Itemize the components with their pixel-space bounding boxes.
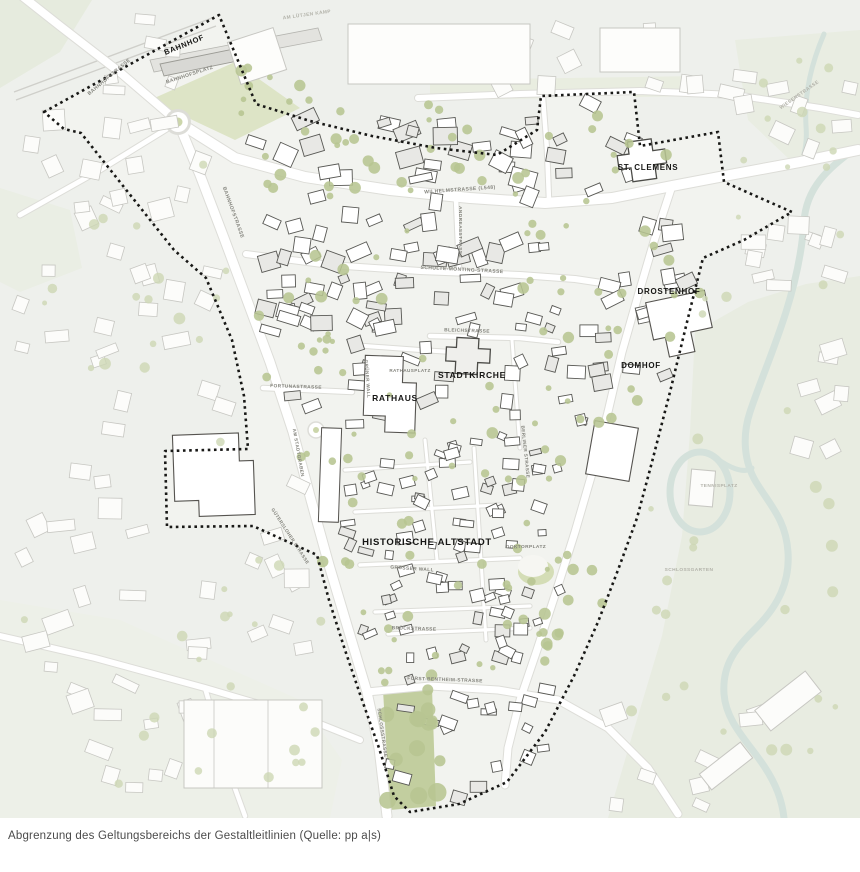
building <box>525 116 538 125</box>
tree <box>662 693 670 701</box>
tree <box>518 615 528 625</box>
tree <box>740 157 747 164</box>
tree <box>450 162 460 172</box>
building <box>537 76 556 96</box>
tree <box>262 153 269 160</box>
tree <box>539 327 547 335</box>
building <box>510 410 521 420</box>
building <box>120 590 146 601</box>
tree <box>826 540 838 552</box>
tree <box>759 78 768 87</box>
building <box>489 578 505 590</box>
building <box>45 330 69 343</box>
tree <box>196 657 202 663</box>
tree <box>824 63 833 72</box>
tree <box>353 297 360 304</box>
label-doktorplatz: DOKTORPLATZ <box>506 544 546 550</box>
tree <box>613 326 622 335</box>
tree <box>816 123 826 133</box>
tree <box>336 107 344 115</box>
tree <box>555 557 562 564</box>
tree <box>780 605 789 614</box>
tree <box>275 169 287 181</box>
tree <box>592 110 603 121</box>
long-building <box>318 428 341 523</box>
tree <box>555 628 564 637</box>
tree <box>827 586 838 597</box>
tree <box>661 609 671 619</box>
tree <box>652 606 661 615</box>
tree <box>348 498 358 508</box>
tree <box>796 58 802 64</box>
building <box>508 702 522 712</box>
tree <box>449 463 456 470</box>
tree <box>337 264 349 276</box>
tree <box>680 681 689 690</box>
tree <box>539 608 551 620</box>
label-st-clemens: ST. CLEMENS <box>618 163 679 172</box>
building <box>344 484 357 496</box>
label-rathausplatz: RATHAUSPLATZ <box>389 368 430 373</box>
label-domhof: DOMHOF <box>621 361 661 370</box>
tree <box>541 445 549 453</box>
tree <box>264 772 274 782</box>
building <box>567 365 586 379</box>
tree <box>536 631 542 637</box>
tree <box>254 311 264 321</box>
building <box>493 291 513 307</box>
tree <box>88 365 94 371</box>
building <box>788 216 810 235</box>
tree <box>541 638 553 650</box>
label-schlossgarten: SCHLOSSGARTEN <box>665 567 714 573</box>
tree <box>274 560 285 571</box>
tree <box>594 288 602 296</box>
tree <box>334 142 340 148</box>
tree <box>310 727 319 736</box>
tree <box>339 369 346 376</box>
building <box>80 159 103 180</box>
tree <box>545 132 553 140</box>
tree <box>241 97 247 103</box>
tree <box>736 215 741 220</box>
tree <box>588 125 596 133</box>
tree <box>428 783 447 802</box>
building <box>686 75 704 94</box>
building <box>546 147 566 164</box>
tree <box>408 187 414 193</box>
tree <box>196 336 203 343</box>
tree <box>720 728 726 734</box>
building <box>101 421 125 437</box>
tree <box>557 288 564 295</box>
tree <box>546 385 552 391</box>
tree <box>292 759 299 766</box>
building <box>74 201 90 213</box>
tree <box>650 242 659 251</box>
building <box>47 519 76 533</box>
building <box>342 206 359 223</box>
building <box>538 243 549 251</box>
tree <box>207 728 217 738</box>
hall-building <box>600 28 680 72</box>
tree <box>149 712 159 722</box>
tree <box>517 282 529 294</box>
building <box>504 437 520 446</box>
tree <box>177 631 188 642</box>
building <box>745 250 762 268</box>
tree <box>422 684 433 695</box>
building <box>661 224 683 242</box>
tree <box>576 415 584 423</box>
tree <box>565 398 571 404</box>
building <box>460 274 481 282</box>
building <box>380 458 395 468</box>
label-tennisplatz: TENNISPLATZ <box>700 483 737 489</box>
building <box>832 119 852 133</box>
tree <box>823 163 830 170</box>
tree <box>639 225 650 236</box>
tree <box>665 332 675 342</box>
tree <box>223 268 230 275</box>
tree <box>797 107 808 118</box>
tree <box>563 332 574 343</box>
tree <box>823 498 834 509</box>
tree <box>99 358 111 370</box>
tree <box>238 110 244 116</box>
building <box>69 463 91 480</box>
tree <box>389 753 403 767</box>
tree <box>349 134 359 144</box>
building <box>538 529 546 536</box>
building <box>741 235 766 250</box>
tree <box>133 222 140 229</box>
building <box>503 458 520 469</box>
retail-building <box>184 700 322 788</box>
tree <box>563 595 574 606</box>
tree <box>648 506 654 512</box>
tree <box>487 427 499 439</box>
tree <box>316 617 325 626</box>
tree <box>810 481 822 493</box>
tree <box>42 301 47 306</box>
tree <box>21 616 28 623</box>
tree <box>524 230 530 236</box>
tree <box>378 667 385 674</box>
tree <box>153 273 164 284</box>
tree <box>115 780 123 788</box>
building <box>834 385 849 401</box>
tree <box>243 64 252 73</box>
building <box>470 438 482 446</box>
tree <box>587 565 598 576</box>
tree <box>605 325 611 331</box>
tree <box>721 292 731 302</box>
tree <box>405 551 414 560</box>
tree <box>404 228 409 233</box>
building <box>353 282 367 300</box>
building <box>492 509 503 518</box>
tree <box>139 731 149 741</box>
tree <box>252 621 258 627</box>
tree <box>412 476 417 481</box>
tree <box>493 406 500 413</box>
page: BAHNHOFSPLATZBAHNHOFSTRASSEBAHNHOFSTRASS… <box>0 0 860 872</box>
building <box>395 277 414 288</box>
tree <box>381 679 389 687</box>
tree <box>836 231 844 239</box>
building <box>346 420 364 429</box>
tree <box>689 536 698 545</box>
map-figure: BAHNHOFSPLATZBAHNHOFSTRASSEBAHNHOFSTRASS… <box>0 0 860 818</box>
city-map: BAHNHOFSPLATZBAHNHOFSTRASSEBAHNHOFSTRASS… <box>0 0 860 818</box>
building <box>23 136 40 154</box>
building <box>293 236 311 254</box>
building <box>267 290 283 299</box>
building <box>44 662 58 673</box>
label-historische-altstadt: HISTORISCHE ALTSTADT <box>362 537 492 548</box>
tree <box>419 355 427 363</box>
building <box>385 550 394 559</box>
tree <box>660 149 671 160</box>
hall-building <box>348 24 530 84</box>
label-andreasstrasse: ANDREASSTRASSE <box>457 206 463 258</box>
tree <box>195 767 203 775</box>
tree <box>361 609 367 615</box>
building <box>767 224 785 242</box>
tree <box>626 705 637 716</box>
tree <box>560 275 566 281</box>
tree <box>298 343 305 350</box>
tree <box>434 755 445 766</box>
building <box>733 69 758 84</box>
tree <box>351 432 356 437</box>
tree <box>263 180 271 188</box>
tree <box>505 475 512 482</box>
tree <box>663 255 674 266</box>
building <box>609 797 624 812</box>
tree <box>532 420 538 426</box>
building <box>734 94 755 114</box>
tree <box>432 652 439 659</box>
tree <box>421 716 436 731</box>
tree <box>410 787 427 804</box>
tree <box>516 475 527 486</box>
label-drostenhof: DROSTENHOF <box>638 287 701 296</box>
tree <box>462 125 472 135</box>
tree <box>481 469 489 477</box>
building <box>435 385 447 398</box>
building <box>406 125 419 138</box>
tree <box>317 337 322 342</box>
tree <box>373 254 379 260</box>
building <box>126 782 143 792</box>
tree <box>546 476 552 482</box>
tree <box>396 177 407 188</box>
tree <box>625 139 634 148</box>
tree <box>294 80 305 91</box>
tree <box>358 472 366 480</box>
building <box>381 595 391 605</box>
tree <box>289 745 300 756</box>
tree <box>454 581 462 589</box>
tree <box>267 74 273 80</box>
building <box>42 265 55 276</box>
tree <box>314 366 323 375</box>
building <box>473 612 483 625</box>
domhof-building <box>586 421 639 482</box>
tree <box>563 223 569 229</box>
tree <box>385 667 392 674</box>
tree <box>407 429 416 438</box>
tree <box>435 106 443 114</box>
tree <box>174 313 186 325</box>
building <box>420 341 432 354</box>
building <box>460 520 474 528</box>
building <box>98 498 122 519</box>
tree <box>545 567 550 572</box>
tree <box>583 198 589 204</box>
tree <box>632 395 643 406</box>
tree <box>540 656 549 665</box>
tree <box>262 373 271 382</box>
tree <box>140 362 150 372</box>
building <box>126 156 144 174</box>
building <box>595 333 611 343</box>
tree <box>692 434 703 445</box>
tree <box>606 413 617 424</box>
building <box>842 80 858 95</box>
tree <box>216 438 225 447</box>
tree <box>227 611 233 617</box>
tree <box>343 454 353 464</box>
tree <box>527 277 534 284</box>
tree <box>283 292 294 303</box>
building <box>434 292 449 306</box>
tree <box>315 291 327 303</box>
label-stadtkirche: STADTKIRCHE <box>438 370 506 380</box>
tree <box>405 451 413 459</box>
tree <box>833 704 839 710</box>
tree <box>524 520 531 527</box>
tree <box>604 350 613 359</box>
building <box>148 769 163 782</box>
building <box>469 588 485 603</box>
tree <box>286 98 293 105</box>
building <box>407 653 414 663</box>
building <box>537 744 550 752</box>
tree <box>784 407 791 414</box>
tree <box>513 191 518 196</box>
tree <box>627 385 635 393</box>
tree <box>48 284 58 294</box>
tree <box>144 295 152 303</box>
tree <box>699 310 707 318</box>
tree <box>299 702 308 711</box>
figure-caption: Abgrenzung des Geltungsbereichs der Gest… <box>0 818 860 842</box>
building <box>500 393 513 409</box>
tree <box>505 584 512 591</box>
tree <box>89 219 100 230</box>
tree <box>322 348 328 354</box>
tree <box>819 280 828 289</box>
tree <box>342 139 349 146</box>
building <box>470 781 487 792</box>
tree <box>512 172 524 184</box>
building <box>552 346 567 356</box>
tree <box>780 744 792 756</box>
tree <box>424 100 433 109</box>
tree <box>98 214 107 223</box>
tree <box>474 150 485 161</box>
tree <box>477 559 487 569</box>
tree <box>807 748 813 754</box>
tree <box>327 193 334 200</box>
building <box>390 249 407 262</box>
tree <box>814 695 822 703</box>
building <box>110 188 128 206</box>
tree <box>490 665 495 670</box>
tree <box>345 559 355 569</box>
tree <box>477 176 486 185</box>
tree <box>448 133 457 142</box>
building <box>556 168 573 178</box>
tree <box>702 296 708 302</box>
tree <box>785 164 790 169</box>
building <box>138 302 157 316</box>
tree <box>409 740 425 756</box>
label-rathaus: RATHAUS <box>372 393 418 403</box>
tree <box>485 382 494 391</box>
tree <box>199 161 207 169</box>
tree <box>765 115 771 121</box>
building <box>467 698 479 708</box>
tree <box>349 182 361 194</box>
building <box>103 85 125 95</box>
tree <box>536 230 546 240</box>
building <box>340 519 355 527</box>
tree <box>329 457 337 465</box>
tree <box>611 152 617 158</box>
tree <box>766 744 777 755</box>
tree <box>150 341 157 348</box>
building <box>135 14 156 25</box>
building <box>200 581 217 600</box>
building <box>282 275 296 287</box>
tree <box>662 576 672 586</box>
building <box>163 279 185 302</box>
tree <box>477 661 483 667</box>
building <box>284 569 309 588</box>
tree <box>301 127 310 136</box>
tree <box>227 682 235 690</box>
building <box>94 475 111 489</box>
building <box>429 193 443 211</box>
tree <box>617 289 626 298</box>
tree <box>593 417 604 428</box>
building <box>424 159 442 170</box>
building <box>174 186 190 203</box>
tree <box>376 293 388 305</box>
tree <box>555 455 566 466</box>
building <box>661 268 676 285</box>
tree <box>221 586 227 592</box>
tree <box>402 611 413 622</box>
building <box>491 761 503 773</box>
tree <box>255 557 262 564</box>
tree <box>305 96 312 103</box>
building <box>421 212 437 231</box>
